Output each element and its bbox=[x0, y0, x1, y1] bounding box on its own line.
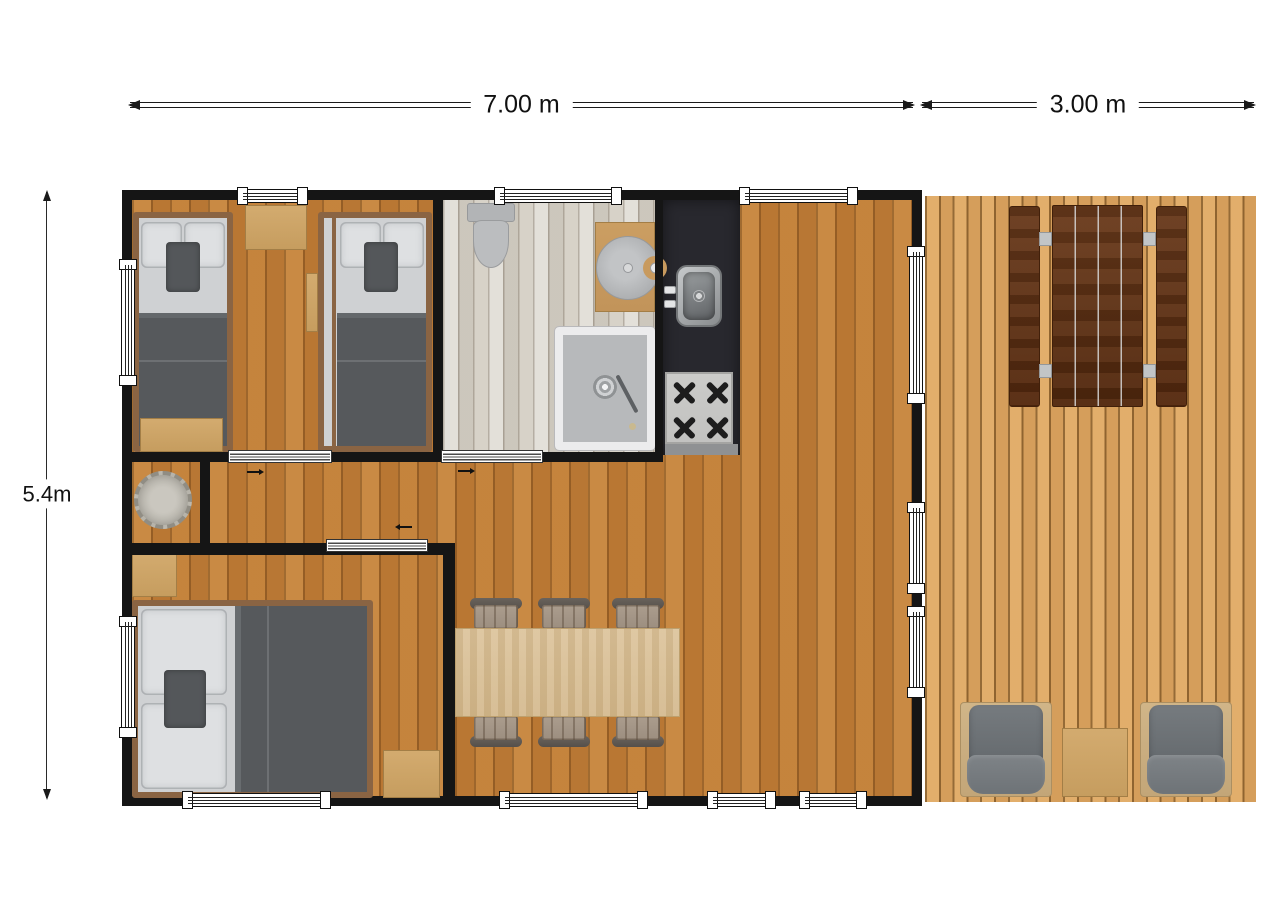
window-glass bbox=[123, 622, 133, 732]
door-direction-arrow-icon bbox=[458, 470, 471, 472]
dimension-line-height: 5.4m bbox=[46, 192, 47, 798]
window bbox=[500, 793, 647, 807]
armchair-seat-cushion bbox=[1147, 755, 1225, 794]
window bbox=[800, 793, 866, 807]
dimension-label-deck-width: 3.00 m bbox=[1037, 88, 1139, 123]
dining-chair bbox=[612, 598, 664, 630]
accent-pillow bbox=[164, 670, 206, 728]
wall-segment bbox=[655, 200, 663, 462]
picnic-bench bbox=[1009, 206, 1040, 407]
shower bbox=[555, 327, 655, 450]
wall-segment bbox=[200, 455, 210, 545]
bedside-table bbox=[245, 205, 307, 250]
window bbox=[121, 260, 135, 385]
shower-dot bbox=[629, 423, 636, 430]
dimension-line-main-width: 7.00 m bbox=[130, 102, 913, 108]
counter-end-panel bbox=[665, 444, 738, 455]
dining-chair bbox=[470, 598, 522, 630]
chair-seat bbox=[542, 716, 586, 740]
burner-icon bbox=[705, 380, 730, 405]
bench-bracket bbox=[1143, 364, 1156, 378]
round-rug bbox=[134, 471, 192, 529]
sink-drain-icon bbox=[693, 290, 705, 302]
chair-seat bbox=[474, 716, 518, 740]
window bbox=[909, 607, 923, 697]
accent-pillow bbox=[364, 242, 398, 292]
window-glass bbox=[188, 795, 325, 805]
chair-seat bbox=[542, 605, 586, 629]
double-bed bbox=[132, 600, 373, 798]
lounge-armchair bbox=[1140, 702, 1232, 797]
chair-seat bbox=[474, 605, 518, 629]
blanket-seam bbox=[337, 360, 426, 362]
window bbox=[238, 189, 307, 203]
door-direction-arrow-icon bbox=[399, 526, 412, 528]
window-glass bbox=[745, 191, 852, 201]
shower-drain-icon bbox=[593, 375, 617, 399]
lounge-armchair bbox=[960, 702, 1052, 797]
dining-chair bbox=[538, 598, 590, 630]
window bbox=[909, 503, 923, 593]
nightstand bbox=[132, 552, 177, 597]
bed-blanket bbox=[235, 606, 367, 792]
floor-plan: 7.00 m 3.00 m 5.4m bbox=[0, 0, 1280, 905]
cabin bbox=[122, 190, 922, 806]
sink-faucet bbox=[664, 286, 676, 294]
door-direction-arrow-icon bbox=[247, 471, 260, 473]
nightstand bbox=[383, 750, 440, 798]
window bbox=[909, 247, 923, 403]
wall-segment bbox=[443, 543, 455, 796]
dimension-label-height: 5.4m bbox=[13, 479, 82, 508]
dining-chair bbox=[612, 715, 664, 747]
door-glass bbox=[230, 452, 330, 461]
foot-bench bbox=[140, 418, 223, 452]
basin-drain-icon bbox=[623, 263, 633, 273]
window-glass bbox=[805, 795, 861, 805]
window bbox=[740, 189, 857, 203]
window bbox=[121, 617, 135, 737]
bench-bracket bbox=[1039, 232, 1052, 246]
sink-faucet bbox=[664, 300, 676, 308]
bed-blanket bbox=[337, 313, 426, 446]
blanket-seam bbox=[267, 606, 269, 792]
single-bed bbox=[318, 212, 432, 452]
arrow-left-icon bbox=[128, 100, 140, 110]
door-glass bbox=[328, 541, 426, 550]
window-glass bbox=[500, 191, 616, 201]
arrow-up-icon bbox=[43, 190, 51, 201]
burner-icon bbox=[705, 415, 730, 440]
bench-bracket bbox=[1143, 232, 1156, 246]
arrow-right-icon bbox=[903, 100, 915, 110]
dimension-line-deck-width: 3.00 m bbox=[922, 102, 1254, 108]
window-glass bbox=[911, 252, 921, 398]
accent-pillow bbox=[166, 242, 200, 292]
dining-chair bbox=[538, 715, 590, 747]
window-glass bbox=[911, 508, 921, 588]
window-glass bbox=[123, 265, 133, 380]
deck-terrace bbox=[925, 196, 1256, 802]
sliding-door bbox=[228, 450, 332, 463]
sliding-door bbox=[441, 450, 543, 463]
picnic-bench bbox=[1156, 206, 1187, 407]
wall-segment bbox=[132, 452, 663, 462]
window-glass bbox=[911, 612, 921, 692]
burner-icon bbox=[672, 415, 697, 440]
wall-shelf bbox=[306, 273, 318, 332]
window bbox=[495, 189, 621, 203]
window-glass bbox=[243, 191, 302, 201]
side-table bbox=[1062, 728, 1128, 797]
arrow-down-icon bbox=[43, 789, 51, 800]
stove-four-burners bbox=[665, 372, 733, 444]
shower-handle bbox=[615, 375, 638, 414]
blanket-seam bbox=[139, 360, 227, 362]
dining-chair bbox=[470, 715, 522, 747]
round-washbasin bbox=[596, 236, 660, 300]
sliding-door bbox=[326, 539, 428, 552]
door-glass bbox=[443, 452, 541, 461]
picnic-table bbox=[1052, 205, 1143, 407]
kitchen-sink bbox=[676, 265, 722, 327]
bench-bracket bbox=[1039, 364, 1052, 378]
window bbox=[708, 793, 775, 807]
window-glass bbox=[713, 795, 770, 805]
burner-icon bbox=[672, 380, 697, 405]
wall-segment bbox=[433, 200, 443, 462]
armchair-seat-cushion bbox=[967, 755, 1045, 794]
chair-seat bbox=[616, 605, 660, 629]
arrow-left-icon bbox=[920, 100, 932, 110]
window-glass bbox=[505, 795, 642, 805]
bed-side-rail bbox=[332, 218, 336, 446]
arrow-right-icon bbox=[1244, 100, 1256, 110]
window bbox=[183, 793, 330, 807]
dimension-label-main-width: 7.00 m bbox=[470, 88, 572, 123]
single-bed bbox=[133, 212, 233, 452]
dining-table bbox=[455, 628, 680, 717]
chair-seat bbox=[616, 716, 660, 740]
